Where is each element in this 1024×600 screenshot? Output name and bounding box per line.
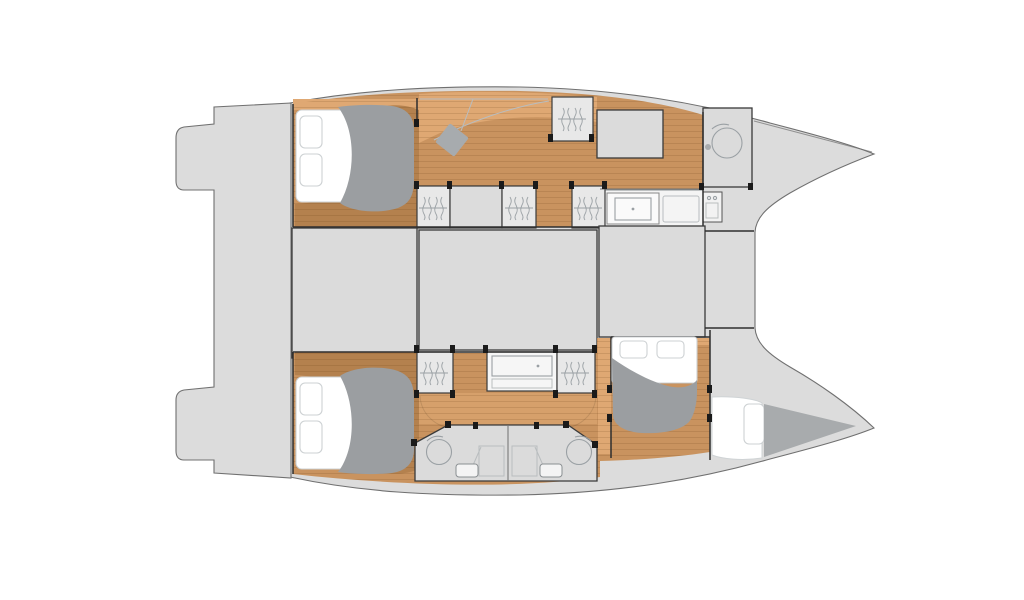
toilet-icon <box>540 464 562 477</box>
pillow <box>620 341 647 358</box>
wardrobe <box>572 186 605 228</box>
wardrobe <box>557 352 595 393</box>
catamaran-floor-plan <box>0 0 1024 600</box>
port-galley-counter <box>600 190 703 226</box>
drain-dot <box>537 365 540 368</box>
saloon-module <box>419 230 597 350</box>
wardrobe <box>417 186 450 228</box>
floor-plan-canvas <box>0 0 1024 600</box>
forward-saloon-module <box>599 226 705 337</box>
pillow <box>300 154 322 186</box>
aft-swim-platform <box>176 103 291 478</box>
pillow <box>657 341 684 358</box>
pillow <box>300 421 322 453</box>
wardrobe <box>502 186 536 228</box>
wardrobe <box>417 352 453 393</box>
pillow <box>300 116 322 148</box>
appliance-box <box>703 192 722 222</box>
starboard-locker-row <box>417 352 595 393</box>
port-locker-row <box>417 186 605 228</box>
toilet-icon <box>456 464 478 477</box>
wardrobe-port-top <box>552 97 593 141</box>
cabinet <box>450 186 502 228</box>
port-forward-berth <box>597 110 663 158</box>
berth-cushion <box>744 404 764 444</box>
pillow <box>300 383 322 415</box>
drain-dot <box>632 208 635 211</box>
starboard-aft-cabin-bed <box>296 368 414 475</box>
vanity-washbasin <box>487 352 557 391</box>
port-aft-cabin-bed <box>296 105 414 212</box>
cockpit-module <box>292 228 417 358</box>
starboard-hull <box>293 330 856 485</box>
shower-handle <box>705 144 711 150</box>
port-bow-bathroom <box>703 108 752 187</box>
twin-shower-rooms <box>415 425 597 481</box>
